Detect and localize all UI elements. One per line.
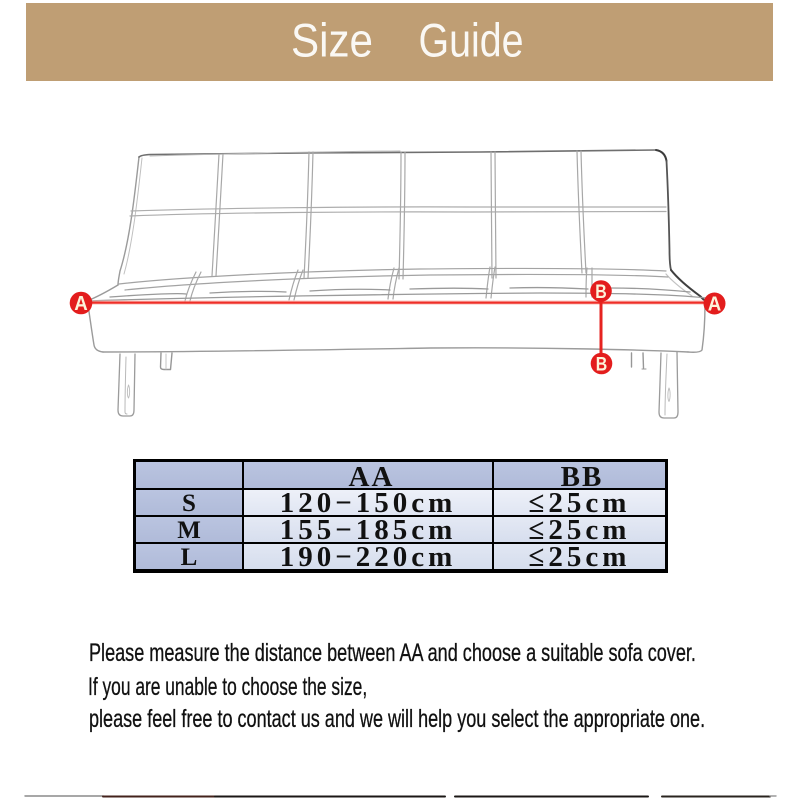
svg-text:B: B [595,282,607,303]
svg-text:B: B [596,355,608,376]
svg-text:A: A [74,293,88,315]
svg-text:A: A [708,294,722,316]
